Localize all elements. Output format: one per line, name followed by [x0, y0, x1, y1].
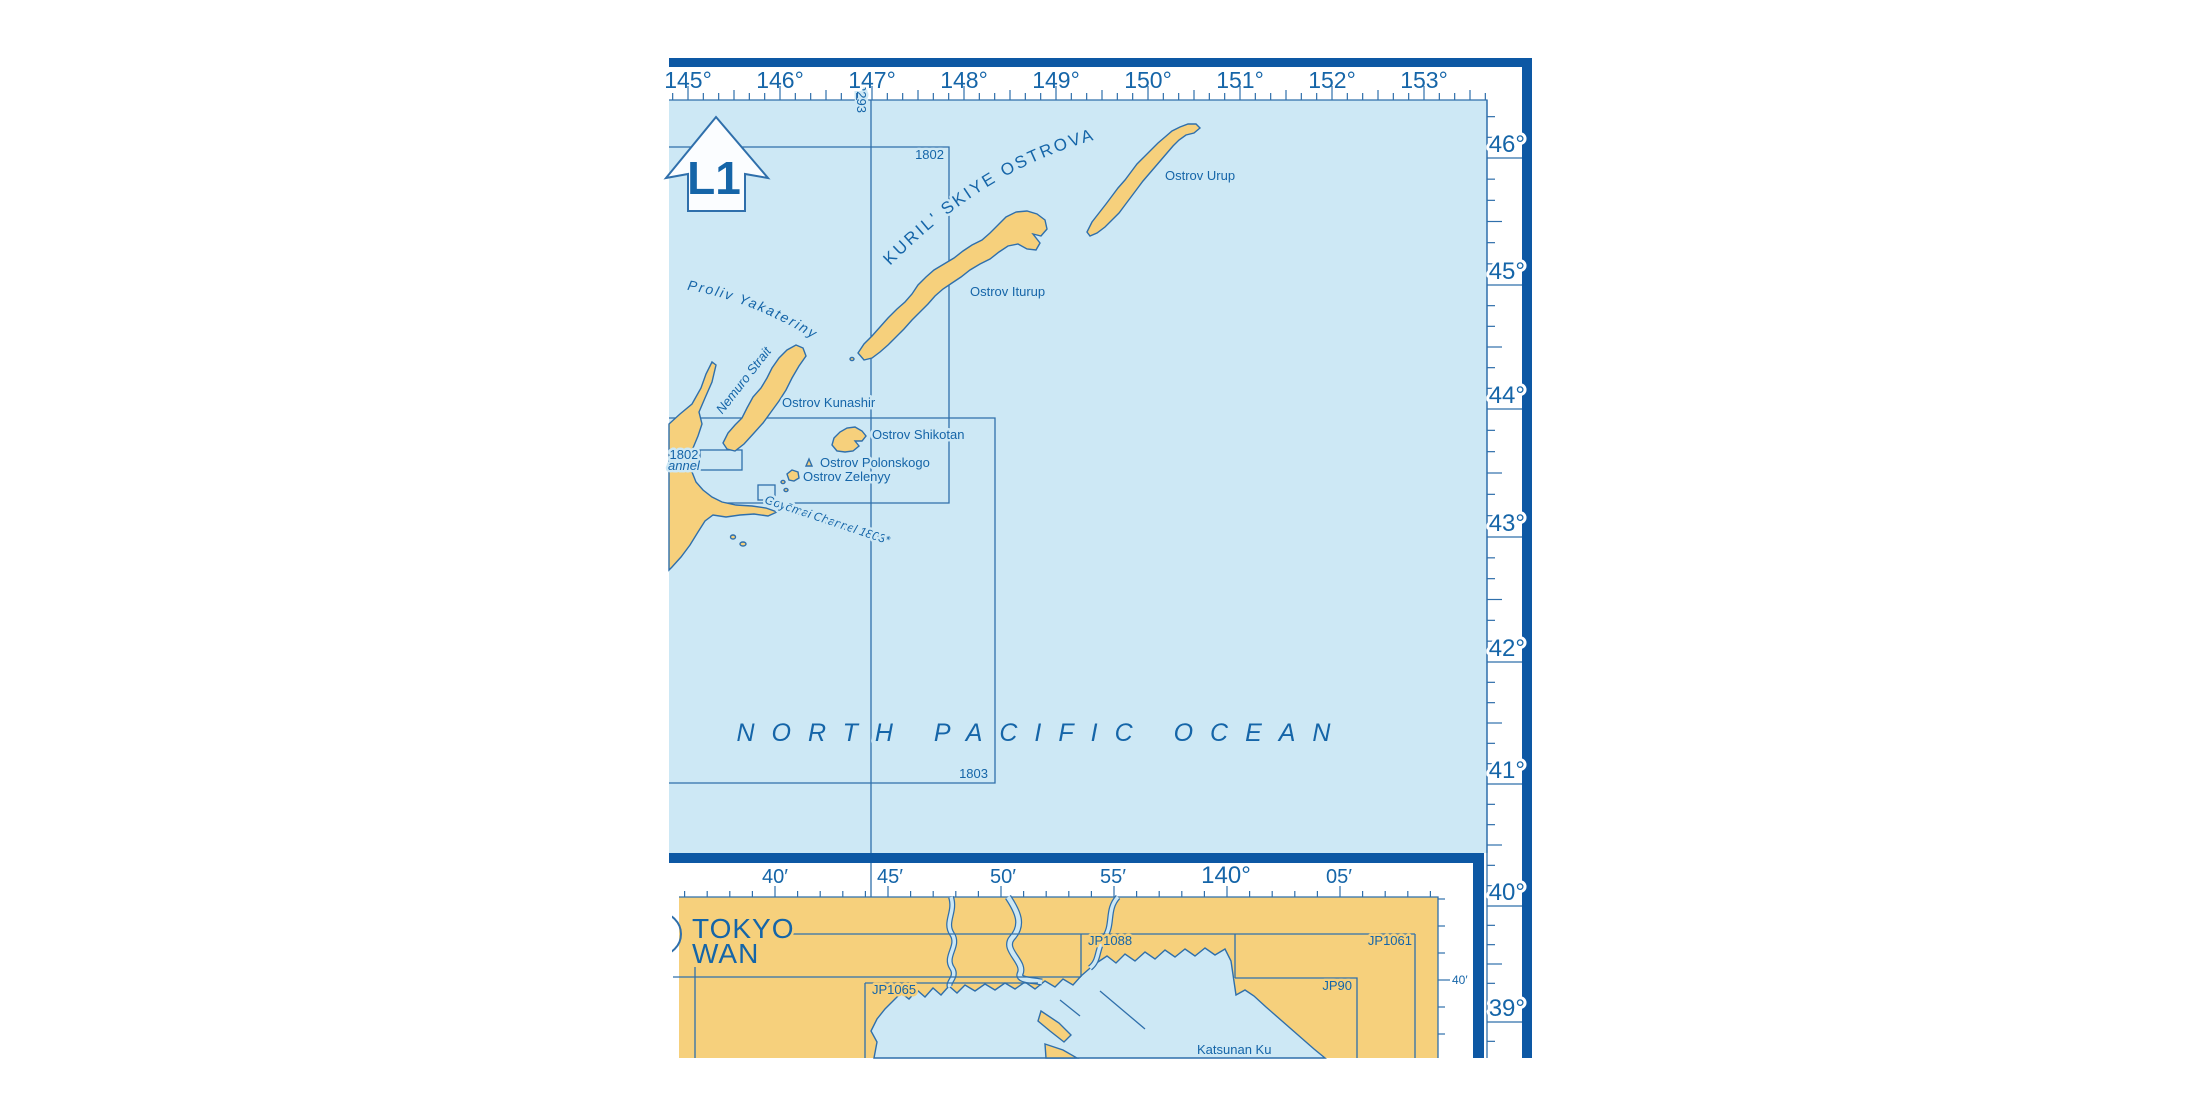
right-ruler-label: 44° [1489, 382, 1525, 409]
arrow-label: L1 [687, 152, 741, 204]
ostrov-iturup-label: Ostrov Iturup [970, 284, 1045, 299]
right-ruler-label: 46° [1489, 131, 1525, 158]
chart-box-jp1088-label: JP1088 [1088, 933, 1132, 948]
inset-latitude-ruler [1438, 899, 1450, 1034]
inset-ruler-label: 05′ [1326, 866, 1352, 888]
right-ruler-label: 39° [1489, 995, 1525, 1022]
right-ruler-label: 43° [1489, 510, 1525, 537]
ostrov-zelenyy-label: Ostrov Zelenyy [803, 469, 891, 484]
ostrov-polonskogo-label: Ostrov Polonskogo [820, 455, 930, 470]
chart-box-jp90-label: JP90 [1322, 978, 1352, 993]
right-ruler-label: 42° [1489, 635, 1525, 662]
compass-circle [639, 913, 681, 955]
inset-right-ruler-label: 40′ [1452, 973, 1468, 987]
right-ruler-label: 41° [1489, 757, 1525, 784]
islet [731, 535, 736, 539]
inset-ruler-label: 50′ [990, 866, 1016, 888]
chart-box-jp1065-label: JP1065 [872, 982, 916, 997]
islet [740, 542, 746, 546]
islet [784, 488, 788, 491]
chart-catalogue-page: L1 2293 1802 1802 1803 KURIL' SKIYE OSTR… [0, 0, 2200, 1120]
inset-ruler-label: 55′ [1100, 866, 1126, 888]
katsunan-ku-label: Katsunan Ku [1197, 1042, 1271, 1057]
chart-canvas: L1 2293 1802 1802 1803 KURIL' SKIYE OSTR… [0, 0, 2200, 1120]
islet [781, 480, 785, 483]
right-latitude-labels: 46°45°44°43°42°41°40°39° [1489, 131, 1525, 1022]
ostrov-shikotan-label: Ostrov Shikotan [872, 427, 965, 442]
top-longitude-ruler: 145°146°147°148°149°150°151°152°153° [664, 67, 1485, 100]
inset-ruler-label: 40′ [762, 866, 788, 888]
chart-ref-1802: 1802 [915, 147, 944, 162]
channel-fragment-label: annel [668, 458, 701, 473]
north-pacific-ocean-label: NORTH PACIFIC OCEAN [737, 719, 1348, 747]
islet [850, 357, 854, 360]
inset-ruler-label: 140° [1201, 862, 1251, 889]
ostrov-urup-label: Ostrov Urup [1165, 168, 1235, 183]
ostrov-kunashir-label: Ostrov Kunashir [782, 395, 876, 410]
chart-ref-1803: 1803 [959, 766, 988, 781]
right-ruler-label: 40° [1489, 879, 1525, 906]
main-map: L1 2293 1802 1802 1803 KURIL' SKIYE OSTR… [664, 67, 1522, 1041]
inset-title-line2: WAN [692, 938, 759, 969]
right-ruler-label: 45° [1489, 258, 1525, 285]
inset-ruler-label: 45′ [877, 866, 903, 888]
inset-map-tokyo-wan: TOKYO WAN JP1088 JP1065 JP1061 JP90 Kats… [639, 862, 1468, 1058]
inset-longitude-ruler: 40′45′50′55′140°05′ [685, 862, 1431, 897]
chart-box-jp1061-label: JP1061 [1368, 933, 1412, 948]
